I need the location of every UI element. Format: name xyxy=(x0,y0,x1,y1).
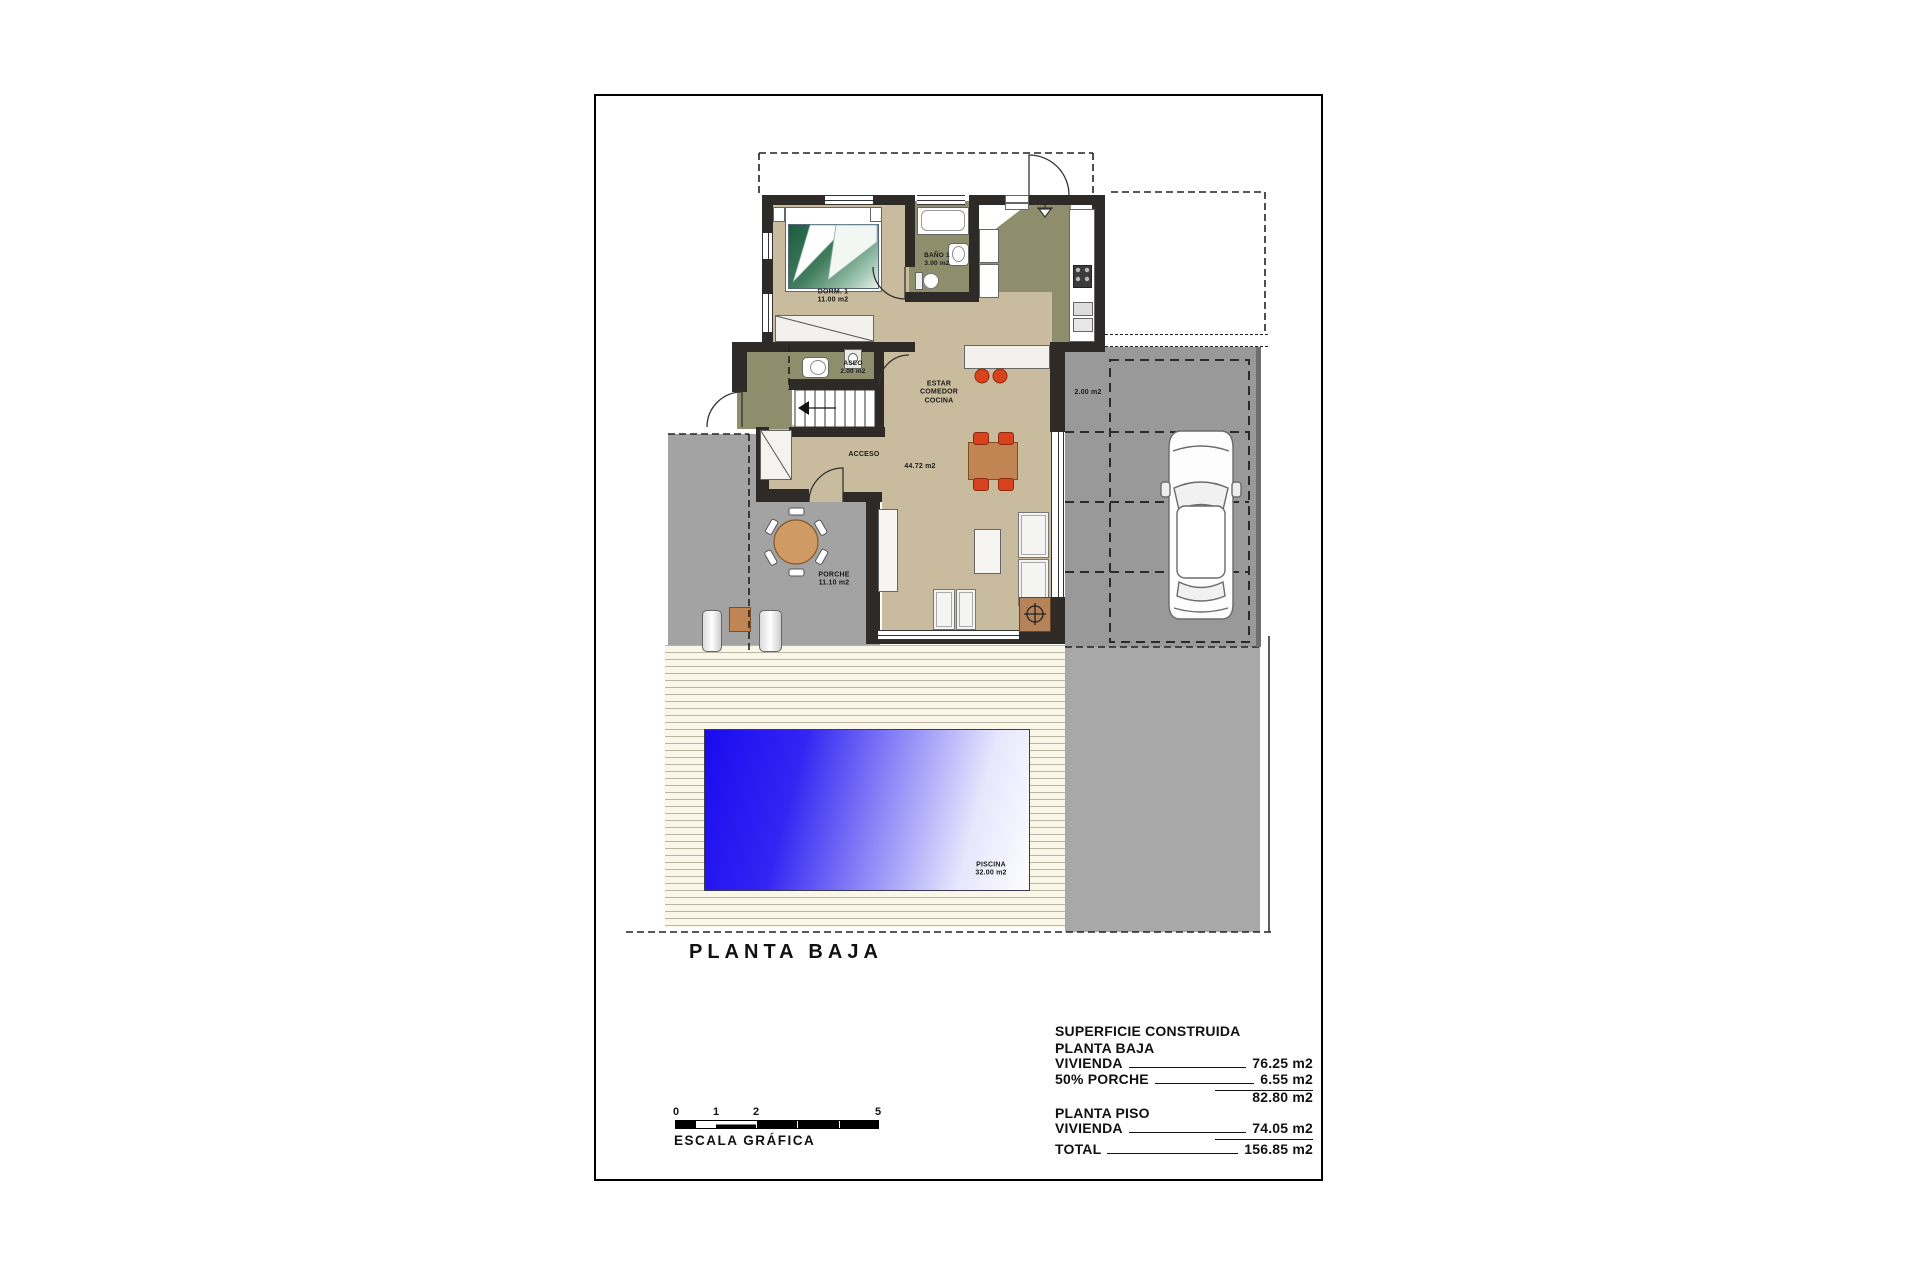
floor-plan: DORM. 111.00 m2 BAÑO 13.00 m2 ASEO2.00 m… xyxy=(596,96,1325,1183)
scale-label: ESCALA GRÁFICA xyxy=(674,1133,815,1148)
summary-row-value: 76.25 m2 xyxy=(1252,1055,1313,1071)
leader-line xyxy=(1129,1132,1247,1133)
summary-row: 50% PORCHE 6.55 m2 xyxy=(1055,1071,1313,1087)
area-summary-table: SUPERFICIE CONSTRUIDA PLANTA BAJA VIVIEN… xyxy=(1055,1023,1313,1157)
summary-header: SUPERFICIE CONSTRUIDA xyxy=(1055,1023,1313,1040)
scale-tick: 0 xyxy=(673,1106,679,1118)
room-label-estar-area: 44.72 m2 xyxy=(904,463,935,471)
summary-subtotal-row: 82.80 m2 xyxy=(1055,1091,1313,1105)
room-label-bano: BAÑO 13.00 m2 xyxy=(924,252,950,268)
room-label-dorm: DORM. 111.00 m2 xyxy=(818,289,849,306)
summary-subtotal-value: 82.80 m2 xyxy=(1252,1089,1313,1105)
scale-bar xyxy=(675,1120,879,1129)
room-label-porche: PORCHE11.10 m2 xyxy=(818,572,849,589)
summary-row: VIVIENDA 76.25 m2 xyxy=(1055,1056,1313,1072)
summary-total-label: TOTAL xyxy=(1055,1141,1101,1157)
summary-row-label: VIVIENDA xyxy=(1055,1055,1123,1071)
summary-row-label: VIVIENDA xyxy=(1055,1120,1123,1136)
summary-total-row: TOTAL 156.85 m2 xyxy=(1055,1142,1313,1158)
room-label-estar: ESTARCOMEDORCOCINA xyxy=(920,380,958,405)
graphic-scale: 0 1 2 5 ESCALA GRÁFICA xyxy=(672,1106,884,1150)
summary-total-value: 156.85 m2 xyxy=(1244,1141,1313,1157)
summary-section-title: PLANTA PISO xyxy=(1055,1105,1313,1121)
scale-tick: 2 xyxy=(753,1106,759,1118)
summary-row-value: 6.55 m2 xyxy=(1260,1071,1313,1087)
scale-tick: 1 xyxy=(713,1106,719,1118)
room-label-aseo: ASEO2.00 m2 xyxy=(840,360,865,376)
summary-row-value: 74.05 m2 xyxy=(1252,1120,1313,1136)
room-label-parking-area: 2.00 m2 xyxy=(1074,389,1101,397)
plan-linework xyxy=(596,96,1325,1183)
summary-row: VIVIENDA 74.05 m2 xyxy=(1055,1120,1313,1136)
scale-tick: 5 xyxy=(875,1106,881,1118)
summary-rule xyxy=(1215,1139,1313,1140)
room-label-piscina: PISCINA32.00 m2 xyxy=(975,862,1006,879)
leader-line xyxy=(1155,1083,1254,1084)
summary-row-label: 50% PORCHE xyxy=(1055,1071,1149,1087)
leader-line xyxy=(1107,1153,1238,1154)
drawing-sheet: DORM. 111.00 m2 BAÑO 13.00 m2 ASEO2.00 m… xyxy=(594,94,1323,1181)
plan-title: PLANTA BAJA xyxy=(689,941,883,964)
summary-section-title: PLANTA BAJA xyxy=(1055,1040,1313,1056)
leader-line xyxy=(1129,1067,1247,1068)
room-label-acceso: ACCESO xyxy=(848,451,879,459)
